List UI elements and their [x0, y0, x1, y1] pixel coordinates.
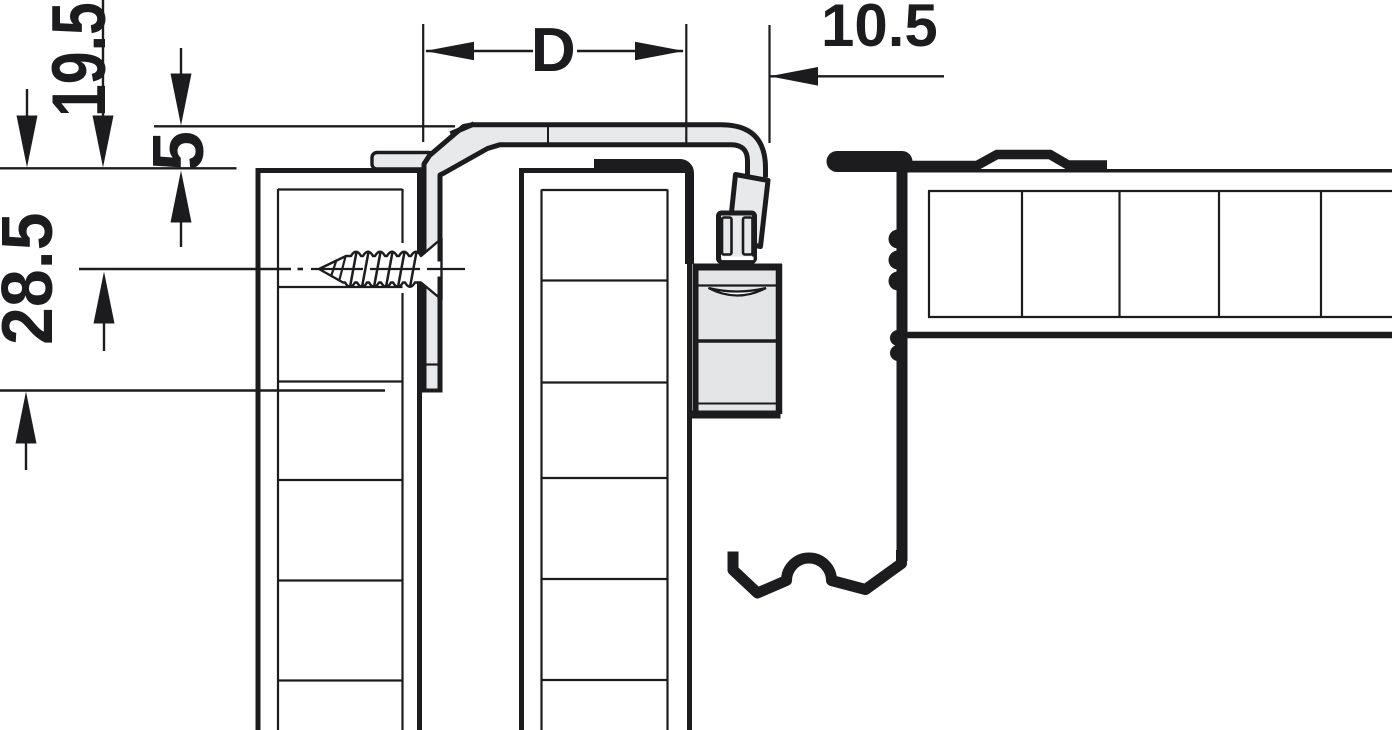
svg-text:19.5: 19.5	[37, 2, 122, 117]
svg-text:10.5: 10.5	[821, 0, 938, 59]
svg-text:28.5: 28.5	[0, 213, 67, 345]
svg-text:5: 5	[139, 131, 219, 171]
svg-text:D: D	[531, 16, 576, 85]
